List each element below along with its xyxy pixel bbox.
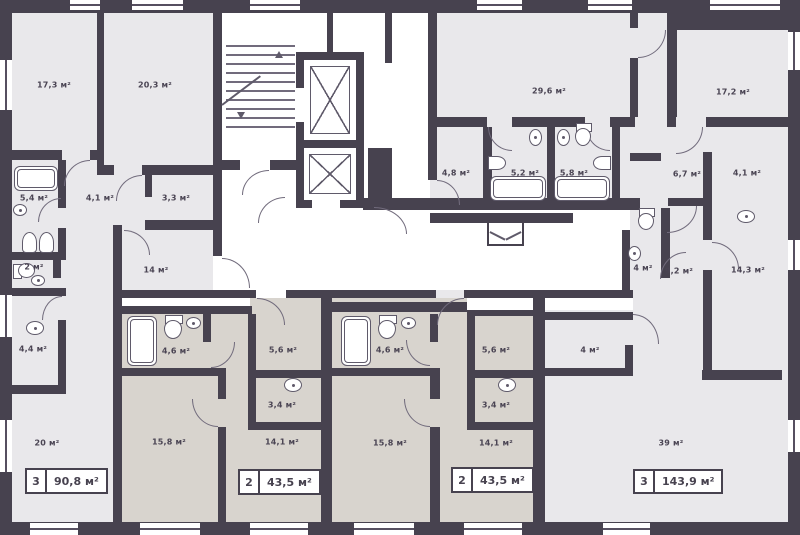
apartment-badge: 2 43,5 м² — [238, 469, 321, 495]
room-label: 17,3 м² — [37, 82, 71, 91]
room-label: 4 м² — [580, 347, 599, 356]
window — [710, 0, 780, 10]
wall — [625, 345, 633, 376]
sink-icon — [557, 129, 570, 146]
window — [0, 60, 12, 110]
wall — [428, 13, 437, 127]
wall — [321, 290, 332, 522]
room-label: 4,1 м² — [86, 195, 114, 204]
badge-area: 143,9 м² — [655, 471, 721, 492]
elevator-door — [312, 200, 340, 208]
wall-recess — [545, 298, 633, 310]
window — [140, 523, 200, 535]
room-label: 4,4 м² — [19, 346, 47, 355]
sink-icon — [737, 210, 755, 223]
wall — [97, 13, 104, 165]
room-label: 20 м² — [35, 440, 60, 449]
bathtub-icon — [14, 166, 58, 191]
window — [70, 0, 100, 10]
wall — [115, 290, 256, 298]
wall — [12, 150, 62, 160]
sink-icon — [401, 317, 416, 329]
stair-tread — [226, 54, 295, 56]
wall — [533, 368, 633, 376]
wall — [270, 160, 297, 170]
basin-icon — [22, 232, 37, 253]
wall — [630, 13, 638, 28]
window — [354, 523, 414, 535]
wall — [706, 117, 788, 127]
bathtub-icon — [490, 176, 546, 201]
wall — [630, 58, 638, 117]
sink-icon — [186, 317, 201, 329]
wall — [703, 270, 712, 372]
wall — [385, 13, 392, 63]
wall — [703, 152, 712, 240]
bathtub-icon — [127, 316, 157, 366]
room-label: 39 м² — [659, 440, 684, 449]
wall — [667, 10, 788, 30]
room-label: 14,3 м² — [731, 267, 765, 276]
room-label: 15,8 м² — [373, 440, 407, 449]
wall — [667, 13, 677, 117]
wall — [702, 370, 782, 380]
room-label: 6,7 м² — [673, 171, 701, 180]
stair-tread — [226, 99, 295, 101]
room-label: 17,2 м² — [716, 89, 750, 98]
arrow-down-icon — [237, 112, 245, 119]
window — [788, 240, 800, 270]
arrow-up-icon — [275, 51, 283, 58]
room-label: 5,4 м² — [20, 195, 48, 204]
bathtub-icon — [554, 176, 610, 201]
wall — [115, 306, 252, 314]
elevator-door — [296, 88, 304, 122]
wall — [467, 310, 533, 316]
wall — [90, 150, 97, 160]
room-label: 5,6 м² — [482, 347, 510, 356]
wall — [142, 165, 213, 175]
badge-area: 43,5 м² — [260, 471, 319, 493]
badge-rooms-count: 3 — [635, 471, 655, 492]
room-label: 3,4 м² — [268, 402, 296, 411]
wall — [248, 314, 256, 370]
wall — [58, 228, 66, 254]
toilet-icon — [575, 123, 591, 146]
stair-tread — [226, 108, 295, 110]
wall — [248, 370, 321, 378]
wall — [467, 370, 533, 378]
room-label: 5,8 м² — [560, 170, 588, 179]
wall — [58, 320, 66, 385]
room-label: 4 м² — [633, 265, 652, 274]
sink-icon — [498, 378, 516, 392]
badge-rooms-count: 2 — [453, 469, 473, 491]
wall — [12, 252, 66, 260]
sink-icon — [628, 246, 641, 261]
elevator-2-icon — [309, 154, 351, 194]
elevator-1-icon — [310, 66, 350, 134]
room-label: 5,2 м² — [511, 170, 539, 179]
wall — [218, 376, 226, 399]
stair-tread — [226, 45, 295, 47]
stair-tread — [226, 72, 295, 74]
wall — [332, 368, 440, 376]
wall — [467, 378, 475, 422]
window — [788, 32, 800, 70]
apartment-badge: 3 143,9 м² — [633, 469, 723, 494]
room-label: 29,6 м² — [532, 88, 566, 97]
window — [0, 420, 12, 472]
room-label: 14,1 м² — [265, 439, 299, 448]
floor-plan: 17,3 м² 20,3 м² 5,4 м² 4,1 м² 3,3 м² 2 м… — [0, 0, 800, 535]
wall — [286, 290, 436, 298]
wall — [327, 13, 333, 52]
window — [477, 0, 522, 10]
wall — [630, 153, 661, 161]
wall — [467, 422, 535, 430]
radiator-icon — [593, 156, 611, 170]
room-label: 3,3 м² — [162, 195, 190, 204]
badge-area: 43,5 м² — [473, 469, 532, 491]
room-label: 20,3 м² — [138, 82, 172, 91]
bathtub-icon — [341, 316, 371, 366]
wall — [115, 368, 226, 376]
wall — [667, 117, 676, 127]
apartment-badge: 3 90,8 м² — [25, 468, 108, 494]
badge-rooms-count: 3 — [27, 470, 47, 492]
wall — [248, 378, 256, 422]
wall — [222, 160, 240, 170]
stair-tread — [226, 81, 295, 83]
wall — [145, 220, 213, 230]
room-label: 4,8 м² — [442, 170, 470, 179]
wall-recess — [467, 298, 533, 310]
wall — [612, 127, 620, 207]
wall — [12, 385, 66, 394]
room-label: 5,6 м² — [269, 347, 297, 356]
wall — [430, 427, 440, 522]
wall — [545, 312, 633, 320]
wall — [428, 127, 437, 180]
wall — [610, 117, 635, 127]
room-label: 3,4 м² — [482, 402, 510, 411]
badge-rooms-count: 2 — [240, 471, 260, 493]
room-label: 2 м² — [24, 264, 43, 273]
wall — [467, 316, 475, 370]
door-arc — [242, 170, 269, 195]
wall — [12, 288, 66, 296]
toilet-icon — [638, 208, 654, 230]
wall — [218, 427, 226, 522]
room-label: 4,6 м² — [162, 348, 190, 357]
window — [588, 0, 632, 10]
wall — [464, 290, 633, 298]
basin-icon — [39, 232, 54, 253]
stair-tread — [226, 126, 295, 128]
sink-icon — [31, 275, 45, 286]
window — [788, 420, 800, 452]
wall — [145, 175, 152, 197]
room-label: 14 м² — [144, 267, 169, 276]
window — [0, 295, 12, 337]
wall — [622, 230, 630, 290]
corridor-niche-icon — [487, 221, 524, 246]
toilet-icon — [378, 315, 396, 339]
wall — [533, 290, 545, 522]
wall — [248, 422, 321, 430]
wall — [53, 260, 61, 278]
sink-icon — [529, 129, 542, 146]
room-label: 15,8 м² — [152, 439, 186, 448]
apartment-badge: 2 43,5 м² — [451, 467, 534, 493]
wall-recess — [122, 298, 250, 306]
room-label: 4,1 м² — [733, 170, 761, 179]
window — [464, 523, 522, 535]
window — [250, 0, 300, 10]
sink-icon — [13, 204, 27, 216]
wall — [430, 376, 440, 399]
room-label: 4,6 м² — [376, 347, 404, 356]
sink-icon — [284, 378, 302, 392]
wall — [97, 165, 114, 175]
window — [250, 523, 308, 535]
badge-area: 90,8 м² — [47, 470, 106, 492]
window — [132, 0, 183, 10]
sink-icon — [26, 321, 44, 335]
wall — [213, 0, 222, 256]
window — [603, 523, 650, 535]
wall — [428, 117, 487, 127]
stair-tread — [226, 63, 295, 65]
wall — [203, 314, 211, 342]
room-label: 9,2 м² — [665, 268, 693, 277]
window — [30, 523, 78, 535]
door-arc — [258, 197, 285, 223]
room-label: 14,1 м² — [479, 440, 513, 449]
toilet-icon — [164, 315, 182, 339]
radiator-icon — [488, 156, 506, 170]
